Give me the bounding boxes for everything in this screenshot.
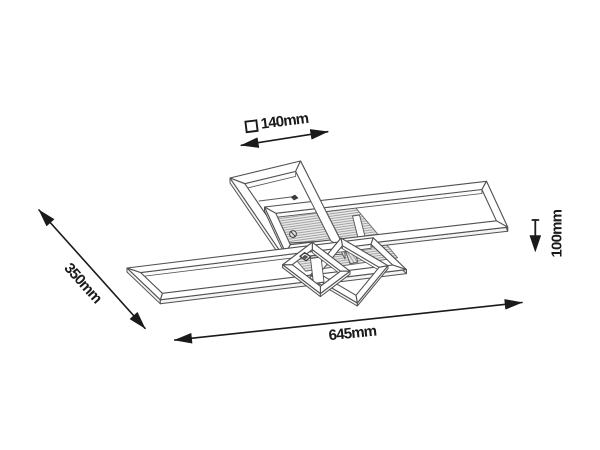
svg-text:100mm: 100mm [548, 209, 565, 257]
